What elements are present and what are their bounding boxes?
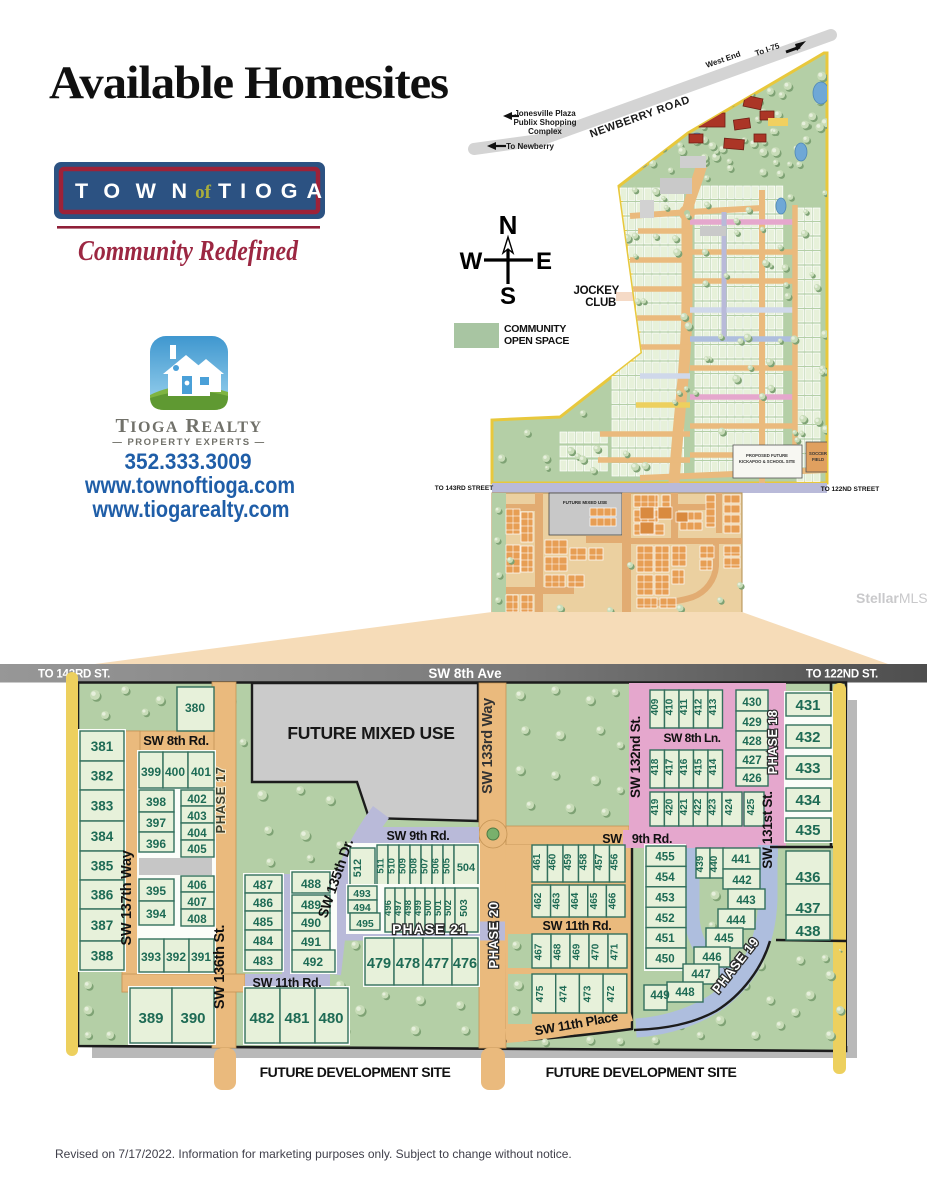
- svg-text:432: 432: [795, 729, 820, 746]
- svg-text:400: 400: [165, 765, 185, 779]
- svg-text:452: 452: [655, 913, 674, 925]
- svg-text:SW 136th St.: SW 136th St.: [212, 925, 228, 1009]
- svg-text:494: 494: [353, 902, 371, 914]
- svg-text:Publix Shopping: Publix Shopping: [513, 118, 576, 127]
- svg-text:463: 463: [552, 892, 563, 909]
- svg-text:393: 393: [141, 950, 161, 964]
- svg-text:431: 431: [795, 697, 820, 714]
- svg-text:PHASE 21: PHASE 21: [392, 921, 468, 937]
- svg-text:411: 411: [679, 698, 690, 715]
- svg-text:SW: SW: [602, 832, 622, 846]
- svg-text:428: 428: [742, 736, 762, 748]
- svg-text:480: 480: [318, 1010, 343, 1027]
- svg-text:502: 502: [443, 900, 454, 916]
- svg-text:403: 403: [187, 811, 206, 823]
- svg-text:386: 386: [91, 888, 114, 903]
- svg-text:512: 512: [352, 859, 364, 877]
- svg-text:420: 420: [664, 798, 675, 815]
- svg-text:433: 433: [795, 760, 820, 777]
- svg-text:PHASE 20: PHASE 20: [486, 902, 501, 969]
- svg-text:SW 8th Rd.: SW 8th Rd.: [143, 733, 209, 748]
- svg-text:397: 397: [146, 816, 166, 830]
- svg-text:504: 504: [457, 862, 476, 874]
- svg-text:402: 402: [187, 794, 206, 806]
- svg-text:PHASE 17: PHASE 17: [213, 767, 228, 834]
- svg-text:COMMUNITY: COMMUNITY: [504, 323, 566, 335]
- svg-text:383: 383: [91, 799, 114, 814]
- svg-text:495: 495: [356, 918, 374, 930]
- svg-text:CLUB: CLUB: [585, 297, 616, 309]
- svg-text:448: 448: [675, 987, 695, 999]
- svg-text:387: 387: [91, 918, 114, 933]
- svg-text:443: 443: [736, 895, 755, 907]
- svg-text:462: 462: [533, 892, 544, 909]
- svg-text:N: N: [499, 210, 518, 240]
- svg-text:461: 461: [532, 853, 543, 870]
- svg-text:483: 483: [253, 954, 273, 968]
- svg-text:SOCCER: SOCCER: [809, 451, 827, 456]
- svg-text:482: 482: [249, 1010, 274, 1027]
- svg-text:www.townoftioga.com: www.townoftioga.com: [84, 472, 295, 498]
- svg-text:468: 468: [553, 943, 564, 960]
- svg-text:470: 470: [591, 943, 602, 960]
- svg-text:PROPOSED FUTURE: PROPOSED FUTURE: [746, 453, 788, 458]
- svg-text:450: 450: [655, 954, 674, 966]
- svg-text:475: 475: [535, 985, 546, 1002]
- svg-text:TIOGA REALTY: TIOGA REALTY: [115, 415, 262, 437]
- svg-text:394: 394: [146, 907, 166, 921]
- svg-text:PHASE 18: PHASE 18: [766, 710, 780, 774]
- svg-text:481: 481: [284, 1010, 309, 1027]
- svg-text:447: 447: [691, 969, 710, 981]
- svg-text:506: 506: [431, 858, 442, 874]
- svg-text:381: 381: [91, 739, 114, 754]
- svg-text:www.tiogarealty.com: www.tiogarealty.com: [92, 496, 290, 522]
- svg-text:487: 487: [253, 878, 273, 892]
- svg-text:417: 417: [665, 758, 676, 775]
- svg-text:of: of: [195, 182, 212, 203]
- svg-text:423: 423: [708, 798, 719, 815]
- svg-text:SW 137th Way: SW 137th Way: [119, 850, 135, 945]
- svg-text:511: 511: [376, 858, 387, 874]
- svg-text:486: 486: [253, 896, 273, 910]
- svg-text:465: 465: [589, 892, 600, 909]
- svg-text:396: 396: [146, 837, 166, 851]
- svg-text:434: 434: [795, 792, 821, 809]
- svg-text:SW 131st St.: SW 131st St.: [760, 791, 775, 868]
- svg-text:426: 426: [742, 773, 761, 785]
- svg-text:TO 122ND STREET: TO 122ND STREET: [821, 486, 879, 493]
- svg-text:456: 456: [610, 853, 621, 870]
- svg-text:451: 451: [655, 933, 675, 945]
- svg-text:509: 509: [398, 858, 409, 874]
- svg-text:SW 11th Rd.: SW 11th Rd.: [543, 919, 612, 933]
- svg-text:507: 507: [420, 858, 431, 874]
- svg-text:505: 505: [442, 857, 453, 874]
- svg-text:454: 454: [655, 872, 675, 884]
- svg-text:508: 508: [409, 858, 420, 874]
- svg-text:SW 11th Rd.: SW 11th Rd.: [253, 976, 322, 990]
- svg-text:485: 485: [253, 915, 273, 929]
- svg-text:388: 388: [91, 949, 114, 964]
- svg-text:392: 392: [166, 950, 186, 964]
- svg-text:409: 409: [650, 698, 661, 715]
- svg-text:390: 390: [180, 1010, 205, 1027]
- svg-text:457: 457: [594, 853, 605, 870]
- svg-text:459: 459: [563, 853, 574, 870]
- svg-text:440: 440: [709, 855, 720, 872]
- svg-text:399: 399: [141, 765, 161, 779]
- svg-text:424: 424: [724, 798, 735, 815]
- svg-text:389: 389: [138, 1010, 163, 1027]
- svg-text:SW 8th Ln.: SW 8th Ln.: [664, 731, 721, 745]
- svg-text:473: 473: [582, 985, 593, 1002]
- svg-text:W: W: [460, 248, 483, 275]
- svg-text:491: 491: [301, 935, 321, 949]
- svg-text:Jonesville Plaza: Jonesville Plaza: [514, 109, 576, 118]
- svg-text:418: 418: [650, 758, 661, 775]
- svg-text:401: 401: [191, 765, 211, 779]
- svg-text:441: 441: [731, 854, 751, 866]
- svg-text:438: 438: [795, 923, 820, 940]
- svg-text:406: 406: [187, 880, 206, 892]
- svg-text:458: 458: [579, 853, 590, 870]
- svg-text:398: 398: [146, 795, 166, 809]
- svg-text:To Newberry: To Newberry: [506, 142, 554, 151]
- svg-text:493: 493: [353, 888, 371, 900]
- svg-text:474: 474: [559, 985, 570, 1002]
- svg-text:385: 385: [91, 859, 114, 874]
- svg-text:352.333.3009: 352.333.3009: [125, 449, 252, 474]
- svg-text:429: 429: [742, 717, 761, 729]
- svg-text:430: 430: [742, 697, 761, 709]
- svg-text:SW 9th Rd.: SW 9th Rd.: [387, 829, 450, 843]
- svg-text:471: 471: [610, 943, 621, 960]
- svg-text:OPEN SPACE: OPEN SPACE: [504, 335, 569, 347]
- svg-text:Complex: Complex: [528, 127, 562, 136]
- svg-text:StellarMLS: StellarMLS: [856, 590, 927, 606]
- svg-text:422: 422: [693, 798, 704, 815]
- svg-text:427: 427: [742, 755, 761, 767]
- svg-text:510: 510: [387, 858, 398, 874]
- svg-text:421: 421: [679, 798, 690, 815]
- svg-text:405: 405: [187, 844, 207, 856]
- svg-text:446: 446: [702, 952, 721, 964]
- svg-text:453: 453: [655, 892, 674, 904]
- svg-text:492: 492: [303, 955, 323, 969]
- svg-text:476: 476: [453, 956, 477, 972]
- svg-text:445: 445: [714, 933, 734, 945]
- svg-text:419: 419: [650, 798, 661, 815]
- svg-text:415: 415: [694, 758, 705, 775]
- svg-text:466: 466: [607, 892, 618, 909]
- svg-text:382: 382: [91, 769, 114, 784]
- svg-text:FUTURE DEVELOPMENT SITE: FUTURE DEVELOPMENT SITE: [260, 1064, 451, 1080]
- svg-text:Community Redefined: Community Redefined: [78, 235, 298, 267]
- svg-text:464: 464: [570, 892, 581, 909]
- svg-text:442: 442: [732, 875, 751, 887]
- svg-text:380: 380: [185, 701, 205, 715]
- svg-text:KICKAPOO & SCHOOL SITE: KICKAPOO & SCHOOL SITE: [739, 459, 795, 464]
- svg-text:413: 413: [708, 698, 719, 715]
- svg-text:9th Rd.: 9th Rd.: [632, 832, 672, 846]
- svg-text:FUTURE MIXED USE: FUTURE MIXED USE: [563, 500, 607, 505]
- svg-text:479: 479: [367, 956, 391, 972]
- svg-text:SW 8th Ave: SW 8th Ave: [428, 666, 502, 681]
- svg-text:416: 416: [679, 758, 690, 775]
- svg-text:460: 460: [548, 853, 559, 870]
- svg-text:455: 455: [655, 852, 675, 864]
- svg-text:414: 414: [708, 758, 719, 775]
- svg-text:— PROPERTY EXPERTS —: — PROPERTY EXPERTS —: [112, 437, 265, 448]
- svg-text:391: 391: [191, 950, 211, 964]
- svg-text:SW 132nd St.: SW 132nd St.: [628, 716, 643, 798]
- svg-text:E: E: [536, 248, 552, 275]
- svg-text:FIELD: FIELD: [812, 457, 824, 462]
- svg-text:SW 133rd Way: SW 133rd Way: [480, 698, 496, 794]
- svg-text:488: 488: [301, 877, 321, 891]
- svg-text:484: 484: [253, 934, 273, 948]
- svg-text:JOCKEY: JOCKEY: [574, 285, 620, 297]
- svg-text:Available Homesites: Available Homesites: [49, 57, 449, 109]
- svg-text:408: 408: [187, 914, 207, 926]
- svg-text:395: 395: [146, 884, 166, 898]
- svg-text:FUTURE MIXED USE: FUTURE MIXED USE: [287, 723, 454, 743]
- svg-text:404: 404: [187, 828, 207, 840]
- svg-text:449: 449: [650, 990, 669, 1002]
- svg-text:TO 122ND ST.: TO 122ND ST.: [806, 669, 878, 681]
- svg-text:TO 143RD STREET: TO 143RD STREET: [435, 485, 493, 492]
- svg-text:478: 478: [396, 956, 420, 972]
- svg-text:S: S: [500, 283, 516, 310]
- svg-text:467: 467: [534, 943, 545, 960]
- svg-text:FUTURE DEVELOPMENT SITE: FUTURE DEVELOPMENT SITE: [546, 1064, 737, 1080]
- svg-text:477: 477: [425, 956, 449, 972]
- svg-text:410: 410: [665, 698, 676, 715]
- svg-text:425: 425: [746, 798, 757, 815]
- svg-text:Revised on 7/17/2022. Informat: Revised on 7/17/2022. Information for ma…: [55, 1147, 572, 1161]
- svg-text:444: 444: [726, 915, 746, 927]
- svg-text:503: 503: [458, 899, 470, 917]
- svg-text:435: 435: [795, 822, 820, 839]
- svg-text:439: 439: [695, 855, 706, 872]
- svg-text:384: 384: [91, 829, 114, 844]
- svg-text:469: 469: [572, 943, 583, 960]
- svg-text:412: 412: [694, 698, 705, 715]
- svg-text:407: 407: [187, 897, 206, 909]
- svg-text:472: 472: [606, 985, 617, 1002]
- svg-text:490: 490: [301, 916, 321, 930]
